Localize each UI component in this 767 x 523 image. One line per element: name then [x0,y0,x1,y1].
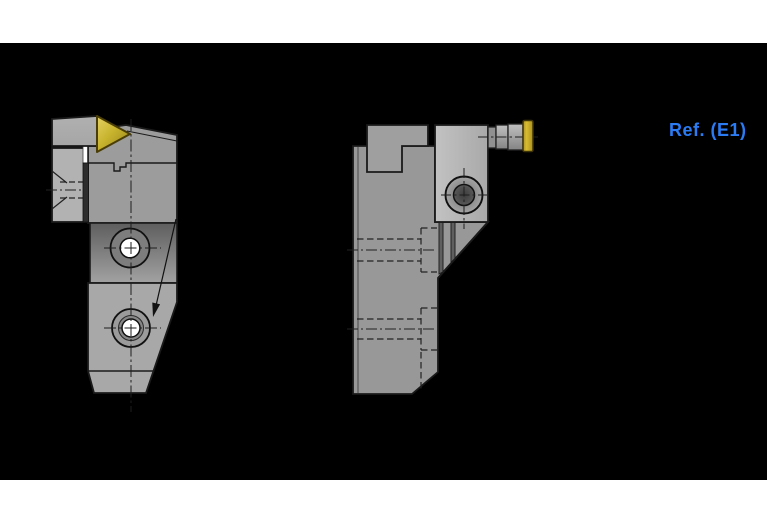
tool-holder-side-view [347,121,538,395]
coolant-cap [523,121,533,152]
ref-label[interactable]: Ref. (E1) [669,120,747,141]
insert-seat-gap [83,146,88,163]
tool-holder-front-view [46,116,177,412]
top-clamp-block [52,116,97,146]
blade-slot [83,163,89,222]
technical-drawing [0,0,767,523]
page-canvas: Ref. (E1) [0,0,767,523]
